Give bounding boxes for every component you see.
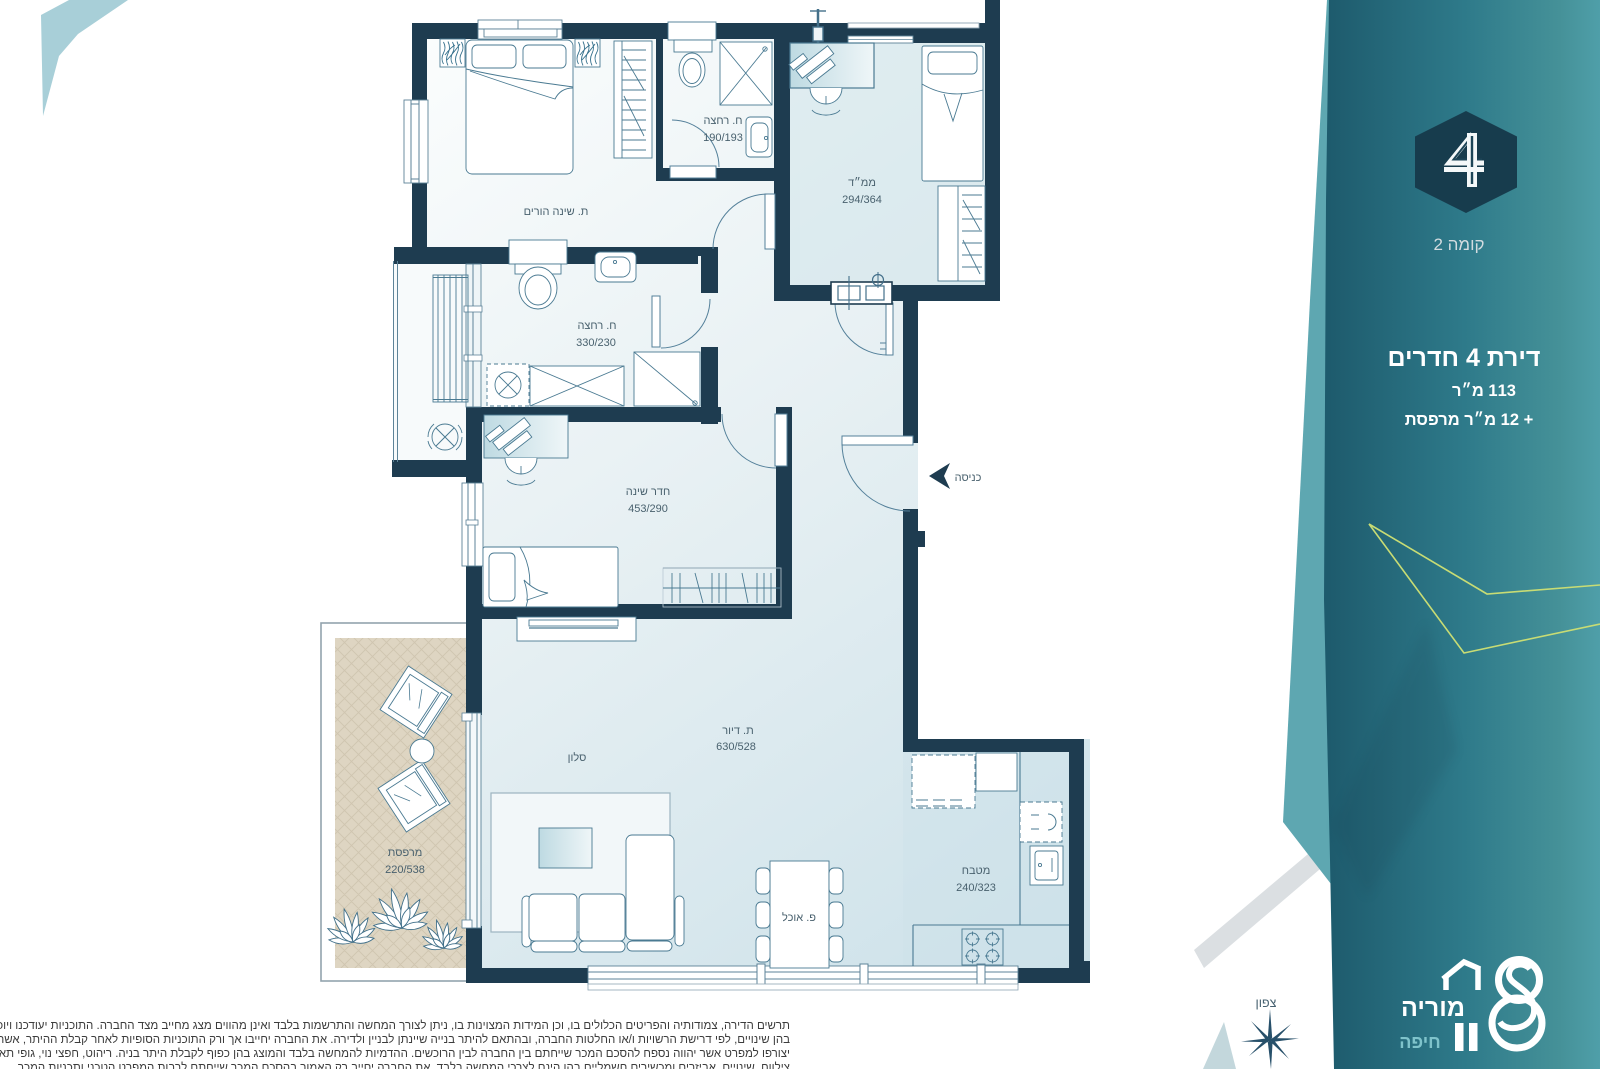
svg-text:‭הפיח: ‭הפיח xyxy=(1399,1032,1441,1052)
svg-text:294/364: 294/364 xyxy=(842,194,882,206)
svg-text:‭רכמה תוינכתו ינכטה טרפמה תובר: ‭רכמה תוינכתו ינכטה טרפמה תוברל םתחייש ר… xyxy=(18,1061,790,1069)
svg-text:‭הצחר .ח: ‭הצחר .ח xyxy=(703,115,742,127)
svg-text:‭םירדח 4 תריד: ‭םירדח 4 תריד xyxy=(1387,344,1540,372)
svg-text:‭תספרמ: ‭תספרמ xyxy=(388,847,423,859)
svg-text:‭ר״מ 113: ‭ר״מ 113 xyxy=(1452,382,1516,400)
svg-text:190/193: 190/193 xyxy=(703,132,743,144)
svg-text:‭,הרואת יפוג ,יונ יצפח ,טוהיר: ‭,הרואת יפוג ,יונ יצפח ,טוהיר .הינב רתיה… xyxy=(0,1047,790,1060)
svg-text:‭חבטמ: ‭חבטמ xyxy=(962,865,991,877)
svg-text:630/528: 630/528 xyxy=(716,741,756,753)
svg-text:‭הירומ: ‭הירומ xyxy=(1401,994,1465,1022)
svg-text:‭רויד .ת: ‭רויד .ת xyxy=(722,725,753,737)
svg-text:220/538: 220/538 xyxy=(385,864,425,876)
svg-text:330/230: 330/230 xyxy=(576,337,616,349)
svg-text:‭ד״ממ: ‭ד״ממ xyxy=(848,176,876,189)
svg-text:240/323: 240/323 xyxy=(956,882,996,894)
svg-text:‭וסנכויו ונכדועי תוינכותה .הרב: ‭וסנכויו ונכדועי תוינכותה .הרבחה דצמ ביי… xyxy=(0,1019,790,1032)
svg-text:453/290: 453/290 xyxy=(628,503,668,515)
svg-text:‭הניש רדח: ‭הניש רדח xyxy=(626,486,670,498)
svg-text:‭2 המוק: ‭2 המוק xyxy=(1433,235,1484,254)
svg-text:‭לכוא .פ: ‭לכוא .פ xyxy=(782,911,816,924)
svg-text:‭הסינכ: ‭הסינכ xyxy=(955,472,982,484)
svg-text:‭רשא ,רתיהה תלבק רחאל תויפוסה: ‭רשא ,רתיהה תלבק רחאל תויפוסה תוינכותה ק… xyxy=(0,1033,790,1046)
svg-text:‭םירוה הניש .ת: ‭םירוה הניש .ת xyxy=(524,206,589,218)
svg-text:‭תספרמ ר״מ 12 +: ‭תספרמ ר״מ 12 + xyxy=(1405,411,1533,429)
svg-text:‭ןופצ: ‭ןופצ xyxy=(1256,996,1277,1010)
svg-text:‭הצחר .ח: ‭הצחר .ח xyxy=(577,320,616,332)
svg-text:‭ןולס: ‭ןולס xyxy=(568,751,587,764)
